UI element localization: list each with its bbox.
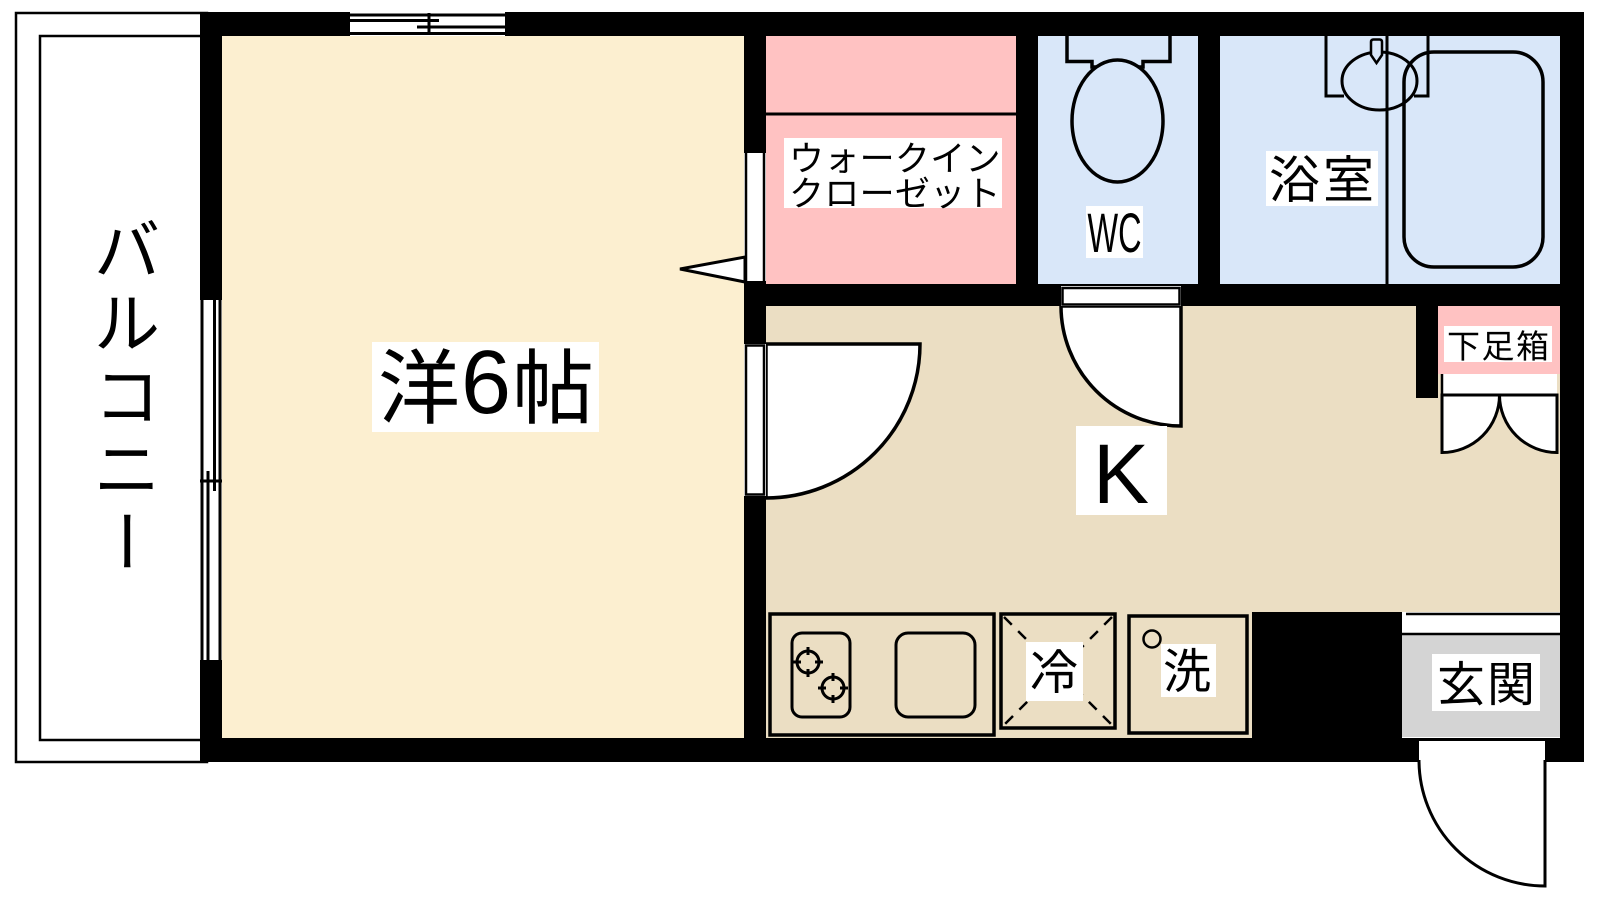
svg-text:6: 6: [461, 333, 511, 433]
svg-text:WC: WC: [1088, 201, 1142, 264]
svg-text:K: K: [1093, 427, 1149, 521]
